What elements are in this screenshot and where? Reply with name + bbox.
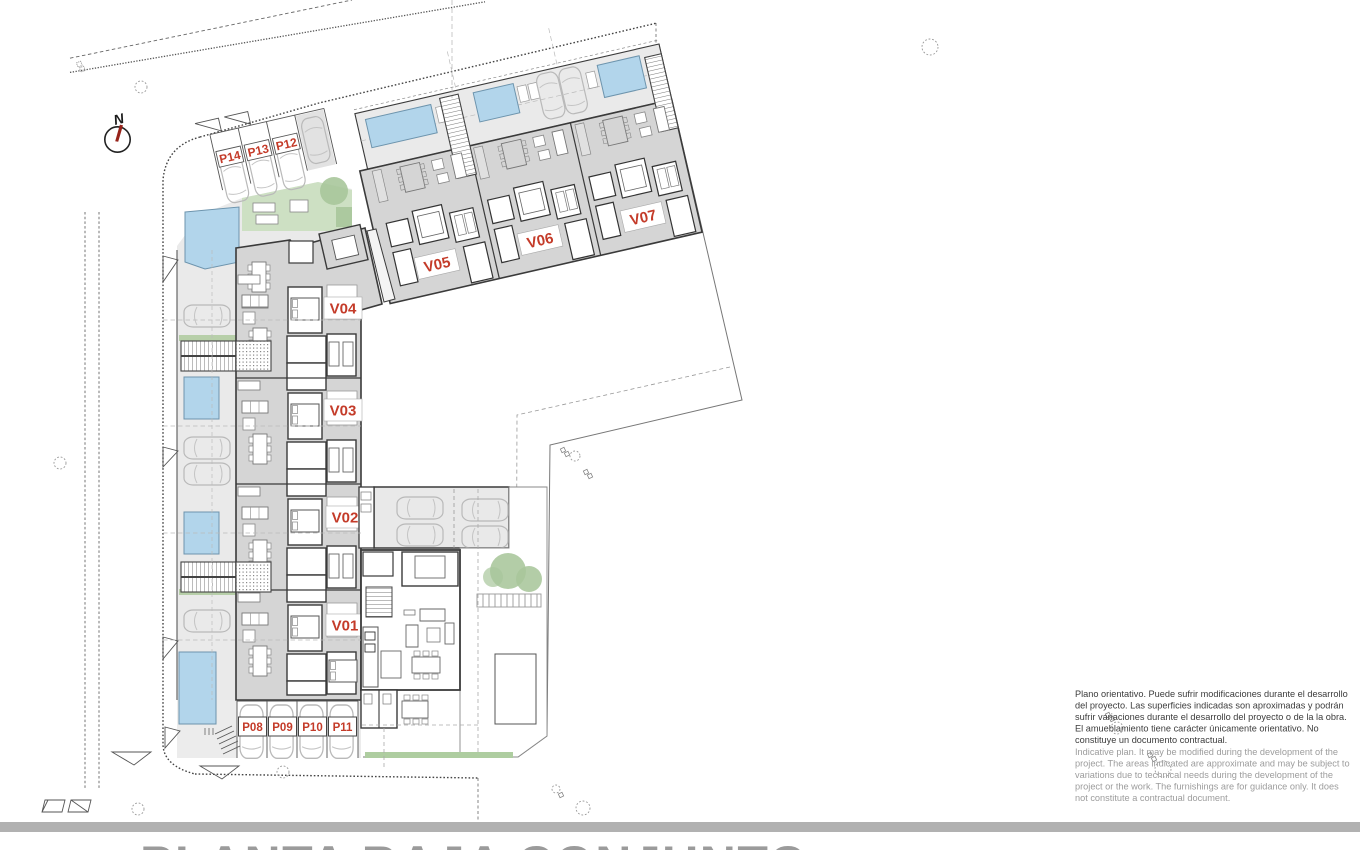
svg-text:V03: V03 (330, 403, 357, 420)
svg-text:Indicative plan. It may be mod: Indicative plan. It may be modified duri… (1075, 747, 1338, 757)
svg-text:P09: P09 (272, 722, 292, 734)
svg-text:V02: V02 (332, 510, 359, 527)
svg-text:del proyecto. Las superficies: del proyecto. Las superficies indicadas … (1075, 701, 1344, 711)
svg-text:sufrir variaciones durante el: sufrir variaciones durante el desarrollo… (1075, 712, 1347, 722)
svg-text:V04: V04 (330, 301, 357, 318)
svg-text:project or the work. The furni: project or the work. The furnishings are… (1075, 782, 1339, 792)
svg-text:Plano orientativo. Puede sufri: Plano orientativo. Puede sufrir modifica… (1075, 689, 1348, 699)
svg-text:N: N (112, 110, 127, 128)
svg-text:variations due to technical ne: variations due to technical needs during… (1075, 770, 1333, 780)
svg-text:P10: P10 (302, 722, 322, 734)
svg-text:not constitute a contractual d: not constitute a contractual document. (1075, 793, 1230, 803)
svg-text:project. The areas indicated a: project. The areas indicated are approxi… (1075, 759, 1350, 769)
svg-text:V01: V01 (332, 618, 359, 635)
svg-text:constituye un documento contra: constituye un documento contractual. (1075, 735, 1227, 745)
svg-text:PLANTA BAJA CONJUNTO: PLANTA BAJA CONJUNTO (140, 836, 809, 850)
svg-text:P11: P11 (333, 722, 353, 734)
svg-text:P08: P08 (242, 722, 263, 734)
svg-text:El amueblamiento tiene carácte: El amueblamiento tiene carácter únicamen… (1075, 724, 1319, 734)
